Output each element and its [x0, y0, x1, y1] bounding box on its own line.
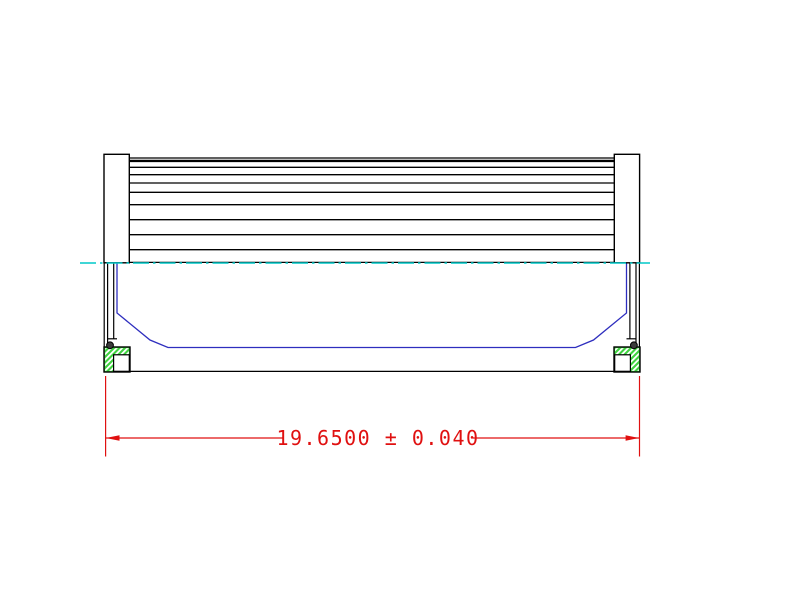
left-oring	[107, 342, 114, 349]
right-arrowhead	[626, 435, 640, 440]
right-gasket	[614, 347, 640, 372]
drawing-canvas: 19.6500 ± 0.040	[0, 0, 810, 600]
left-end-cap	[104, 154, 129, 262]
right-gasket-channel	[615, 355, 631, 372]
right-oring	[631, 342, 638, 349]
left-arrowhead	[106, 435, 120, 440]
pleated-media	[129, 158, 614, 262]
length-dimension: 19.6500 ± 0.040	[106, 376, 640, 457]
left-gasket-channel	[114, 355, 130, 372]
right-lower-wall	[627, 263, 640, 347]
left-gasket	[104, 347, 130, 372]
right-end-cap	[614, 154, 639, 262]
perforated-core	[117, 263, 627, 348]
filter-element-drawing: 19.6500 ± 0.040	[0, 0, 810, 600]
left-lower-wall	[104, 263, 117, 347]
dimension-text: 19.6500 ± 0.040	[276, 426, 479, 450]
